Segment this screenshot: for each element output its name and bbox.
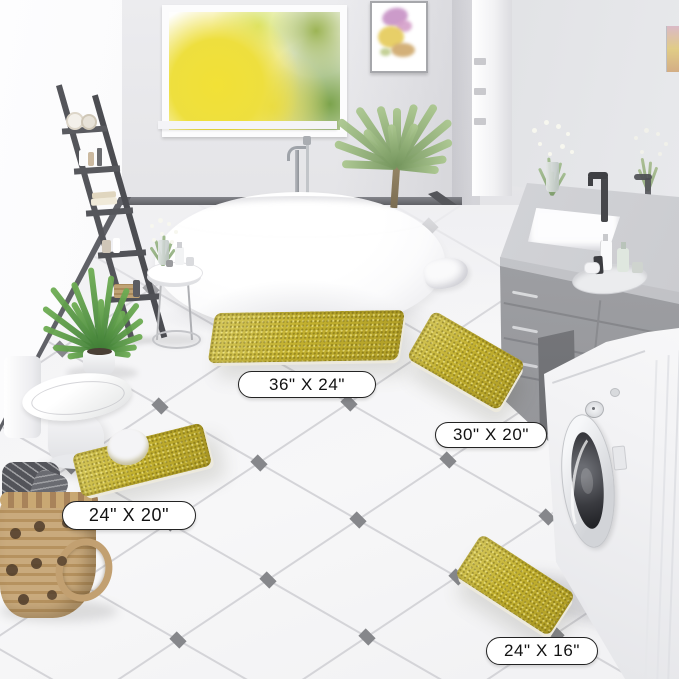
flower-blossom (548, 152, 552, 156)
size-label-text: 30" X 20" (453, 425, 529, 445)
flower-blossom (566, 132, 570, 136)
rug-36x24-large (208, 310, 405, 363)
size-label-rug-small: 24" X 16" (486, 637, 598, 665)
toiletry-bottle-green-pump (621, 242, 626, 249)
flower-blossom (556, 124, 561, 129)
rolled-hand-towel (584, 262, 600, 274)
washer-dial-center (592, 407, 595, 410)
size-label-rug-medium: 30" X 20" (435, 422, 547, 448)
flower-blossom (532, 128, 537, 133)
toiletry-bottle-pump (603, 234, 608, 241)
counter-vase (546, 162, 559, 192)
flower-blossom (570, 150, 574, 154)
flower-blossom (538, 142, 542, 146)
toiletry-jar (632, 262, 643, 273)
washer-button (610, 388, 620, 397)
size-label-rug-contour: 24" X 20" (62, 501, 196, 530)
washer-detergent-drawer (612, 445, 627, 470)
bathroom-product-photo: 36" X 24" 30" X 20" 24" X 20" 24" X 16" (0, 0, 679, 679)
flower-blossom (544, 120, 549, 125)
size-label-text: 36" X 24" (269, 375, 345, 395)
flower-blossom (560, 144, 565, 149)
toiletry-bottle-green (617, 248, 629, 272)
size-label-text: 24" X 20" (89, 505, 169, 526)
size-label-rug-large: 36" X 24" (238, 371, 376, 398)
size-label-text: 24" X 16" (504, 641, 580, 661)
